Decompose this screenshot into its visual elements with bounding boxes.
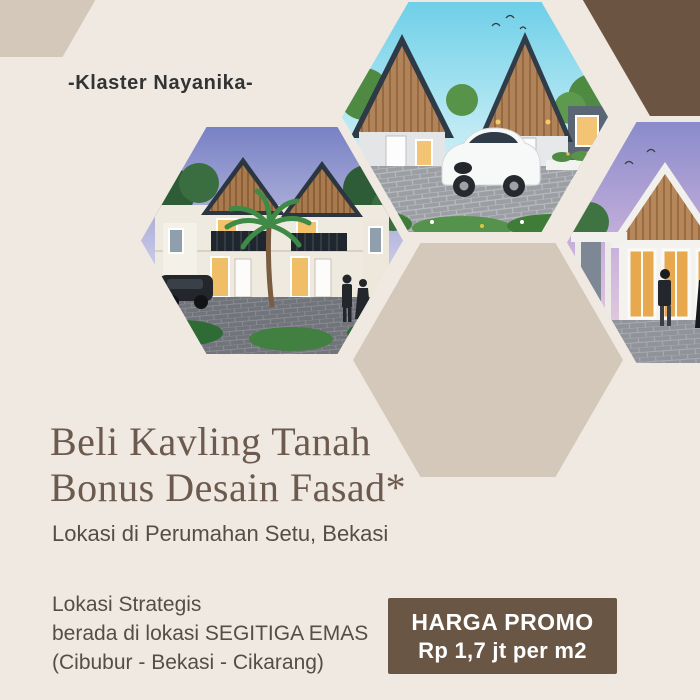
strategic-location-block: Lokasi Strategis berada di lokasi SEGITI… xyxy=(52,590,368,677)
strategic-line-3: (Cibubur - Bekasi - Cikarang) xyxy=(52,648,368,677)
promo-title: HARGA PROMO xyxy=(411,608,593,637)
promo-price: Rp 1,7 jt per m2 xyxy=(418,637,587,665)
flyer-canvas: -Klaster Nayanika- Beli Kavling Tanah Bo… xyxy=(0,0,700,700)
location-subtitle: Lokasi di Perumahan Setu, Bekasi xyxy=(52,521,388,547)
cluster-name-label: -Klaster Nayanika- xyxy=(68,72,253,95)
houses-with-car-illustration xyxy=(342,2,608,232)
hexagon-brown-top-right xyxy=(580,0,700,116)
headline: Beli Kavling Tanah Bonus Desain Fasad* xyxy=(50,419,406,511)
townhouses-illustration xyxy=(141,127,403,354)
hexagon-tan-top-left xyxy=(0,0,130,57)
photo-hexagon-townhouses xyxy=(141,127,403,354)
headline-line-2: Bonus Desain Fasad* xyxy=(50,465,406,511)
price-promo-badge: HARGA PROMO Rp 1,7 jt per m2 xyxy=(388,598,617,674)
planter xyxy=(546,151,608,170)
photo-hexagon-houses-car xyxy=(342,2,608,232)
strategic-line-2: berada di lokasi SEGITIGA EMAS xyxy=(52,619,368,648)
headline-line-1: Beli Kavling Tanah xyxy=(50,419,406,465)
strategic-line-1: Lokasi Strategis xyxy=(52,590,368,619)
